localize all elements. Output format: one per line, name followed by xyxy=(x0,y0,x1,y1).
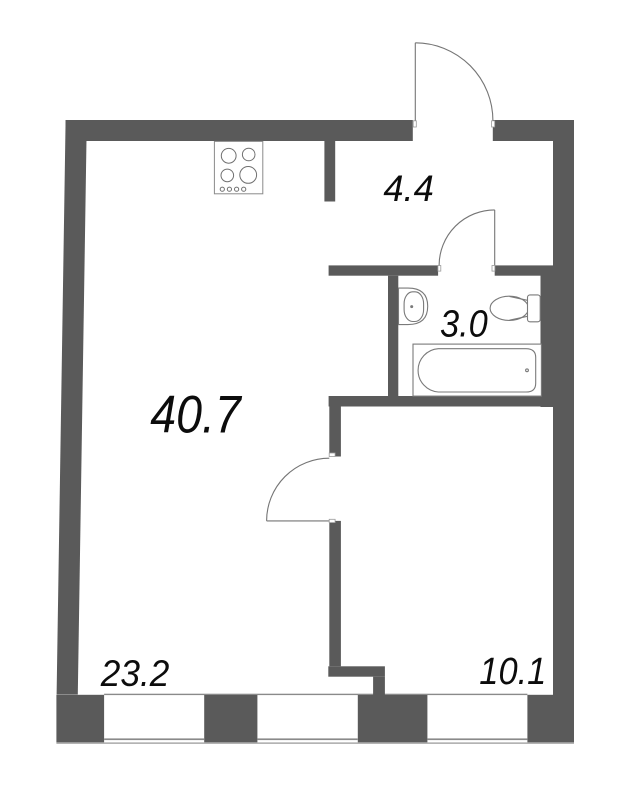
svg-text:23.2: 23.2 xyxy=(100,653,170,694)
svg-text:40.7: 40.7 xyxy=(150,386,243,445)
svg-text:4.4: 4.4 xyxy=(383,168,433,209)
svg-text:3.0: 3.0 xyxy=(440,304,488,346)
svg-text:10.1: 10.1 xyxy=(479,651,546,693)
